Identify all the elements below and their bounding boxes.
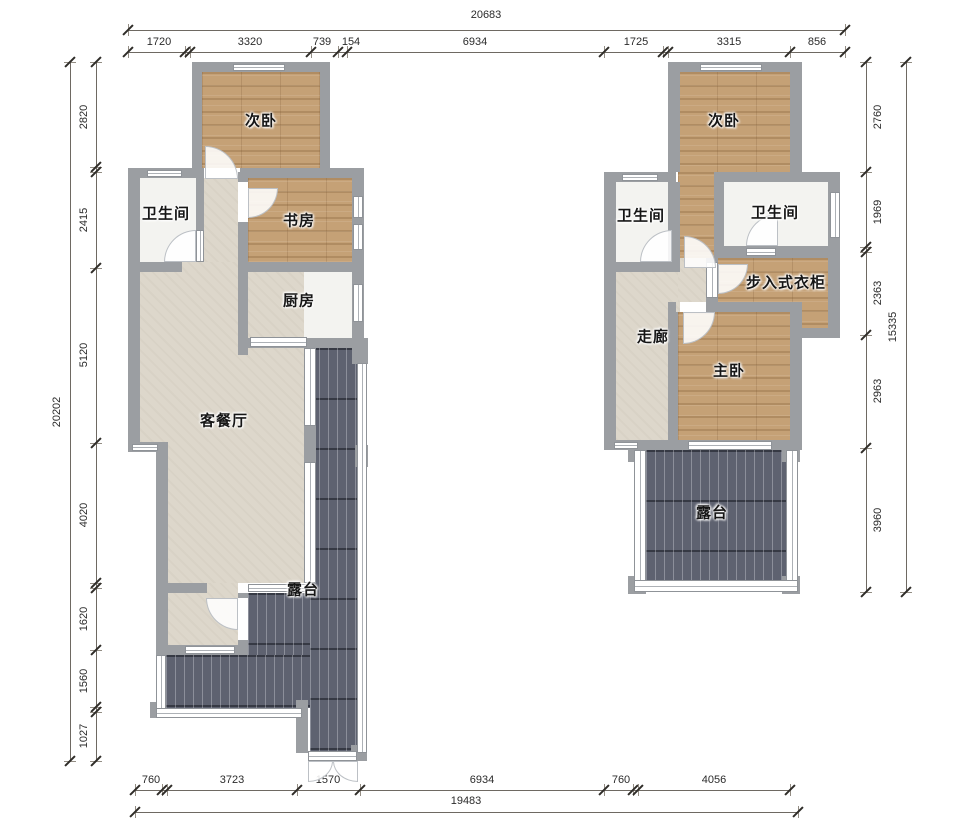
- wall: [156, 442, 168, 655]
- dim-bottom-seg: 760: [142, 774, 160, 786]
- dim-tick: [792, 806, 804, 818]
- dim-tick: [64, 755, 76, 767]
- window: [353, 284, 363, 322]
- room-label-living-dining: 客餐厅: [200, 410, 248, 431]
- wall: [790, 302, 802, 448]
- wall: [238, 593, 248, 598]
- dim-right-seg: 2760: [872, 105, 884, 129]
- window-slider: [688, 441, 772, 450]
- dim-tick: [90, 56, 102, 68]
- dim-tick: [90, 437, 102, 449]
- dim-right-seg-line: [866, 62, 867, 592]
- dim-tick: [839, 24, 851, 36]
- dim-bottom-seg: 4056: [702, 774, 726, 786]
- wall: [714, 172, 840, 182]
- dim-left-total: 20202: [51, 397, 63, 428]
- wall: [320, 62, 330, 168]
- window: [304, 348, 316, 426]
- wall: [196, 168, 204, 230]
- window: [147, 170, 182, 177]
- dim-tick: [90, 262, 102, 274]
- room-label-bedroom2-right: 次卧: [708, 110, 740, 131]
- room-living-dining-floor: [168, 442, 304, 583]
- room-label-bathroom2-right: 卫生间: [751, 202, 799, 223]
- dim-tick: [598, 784, 610, 796]
- wall: [156, 583, 207, 593]
- terrace-rail: [634, 450, 646, 592]
- dim-bottom-seg-line: [135, 790, 790, 791]
- terrace-rail: [786, 450, 798, 592]
- dim-tick: [598, 46, 610, 58]
- wall: [668, 312, 678, 440]
- dim-right-seg: 2963: [872, 379, 884, 403]
- dim-tick: [291, 784, 303, 796]
- wall: [238, 222, 248, 355]
- dim-top-seg: 3320: [238, 36, 262, 48]
- dim-left-seg: 1620: [78, 607, 90, 631]
- wall: [790, 62, 802, 172]
- floor-plan-canvas: 20683 1720 3320 739 154 6934 1725 3315 8…: [0, 0, 980, 840]
- window: [614, 442, 638, 449]
- wall: [604, 182, 616, 448]
- window: [830, 192, 840, 238]
- dim-top-seg: 739: [313, 36, 331, 48]
- room-label-terrace-left: 露台: [287, 579, 319, 600]
- room-label-study: 书房: [283, 210, 315, 231]
- dim-tick: [900, 586, 912, 598]
- dim-tick: [122, 46, 134, 58]
- dim-left-seg: 5120: [78, 343, 90, 367]
- terrace-left-deck: [310, 348, 357, 751]
- dim-tick: [129, 784, 141, 796]
- dim-tick: [122, 24, 134, 36]
- dim-left-seg: 1560: [78, 669, 90, 693]
- dim-bottom-seg: 6934: [470, 774, 494, 786]
- dim-top-total: 20683: [471, 9, 502, 21]
- dim-bottom-seg: 760: [612, 774, 630, 786]
- dim-tick: [860, 586, 872, 598]
- dim-tick: [90, 166, 102, 178]
- dim-top-total-line: [128, 30, 845, 31]
- dim-left-seg: 2820: [78, 105, 90, 129]
- wall: [304, 426, 316, 462]
- dim-left-seg: 4020: [78, 503, 90, 527]
- window: [622, 174, 658, 181]
- dim-tick: [161, 784, 173, 796]
- window: [304, 462, 316, 583]
- room-label-corridor: 走廊: [637, 326, 669, 347]
- room-label-bathroom1-right: 卫生间: [617, 205, 665, 226]
- wall: [668, 62, 680, 172]
- wall: [238, 172, 248, 182]
- dim-right-seg: 2363: [872, 281, 884, 305]
- door-leaf: [196, 230, 204, 262]
- window: [700, 64, 762, 71]
- wall: [352, 168, 364, 272]
- wall: [708, 302, 796, 312]
- dim-bottom-total: 19483: [451, 795, 482, 807]
- kitchen-opening: [250, 337, 307, 347]
- dim-tick: [860, 246, 872, 258]
- dim-top-seg: 6934: [463, 36, 487, 48]
- window: [353, 196, 363, 218]
- terrace-left-deck: [166, 655, 310, 708]
- wall: [128, 168, 140, 450]
- terrace-left-deck: [248, 593, 310, 655]
- dim-left-total-line: [70, 62, 71, 761]
- room-label-terrace-right: 露台: [696, 502, 728, 523]
- wall: [238, 262, 364, 272]
- dim-right-seg: 3960: [872, 508, 884, 532]
- wall: [192, 62, 202, 178]
- dim-tick: [784, 784, 796, 796]
- dim-tick: [860, 166, 872, 178]
- dim-right-total: 15335: [887, 312, 899, 343]
- dim-tick: [662, 46, 674, 58]
- room-label-bedroom2-left: 次卧: [245, 110, 277, 131]
- dim-tick: [900, 56, 912, 68]
- hall-floor: [204, 178, 238, 272]
- dim-tick: [860, 329, 872, 341]
- terrace-rail: [357, 363, 367, 753]
- wall: [240, 168, 364, 178]
- window: [233, 64, 285, 71]
- room-label-kitchen: 厨房: [283, 290, 315, 311]
- dim-top-seg-line: [128, 52, 845, 53]
- wall: [714, 246, 840, 258]
- dim-bottom-seg: 3723: [220, 774, 244, 786]
- dim-tick: [839, 46, 851, 58]
- wall: [128, 262, 182, 272]
- dim-right-total-line: [906, 62, 907, 592]
- dim-top-seg: 1725: [624, 36, 648, 48]
- dim-tick: [90, 582, 102, 594]
- terrace-rail: [308, 751, 357, 761]
- dim-tick: [90, 755, 102, 767]
- dim-tick: [784, 46, 796, 58]
- dim-left-seg: 2415: [78, 208, 90, 232]
- dim-tick: [860, 56, 872, 68]
- room-label-bathroom-left: 卫生间: [142, 203, 190, 224]
- dim-right-seg: 1969: [872, 200, 884, 224]
- dim-top-seg: 154: [342, 36, 360, 48]
- dim-tick: [860, 442, 872, 454]
- dim-top-seg: 3315: [717, 36, 741, 48]
- room-label-master-bedroom: 主卧: [713, 360, 745, 381]
- dim-tick: [90, 644, 102, 656]
- dim-top-seg: 856: [808, 36, 826, 48]
- terrace-rail: [156, 708, 302, 718]
- dim-tick: [90, 706, 102, 718]
- dim-top-seg: 1720: [147, 36, 171, 48]
- room-label-walk-in-closet: 步入式衣柜: [746, 272, 826, 293]
- dim-tick: [632, 784, 644, 796]
- wall: [604, 262, 680, 272]
- dim-tick: [184, 46, 196, 58]
- terrace-rail: [156, 655, 166, 710]
- door-leaf: [746, 248, 776, 256]
- dim-tick: [354, 784, 366, 796]
- wall: [352, 338, 368, 364]
- dim-left-seg: 1027: [78, 724, 90, 748]
- dim-bottom-total-line: [135, 812, 798, 813]
- dim-tick: [64, 56, 76, 68]
- window-door: [185, 646, 235, 654]
- window: [132, 444, 158, 451]
- wall: [668, 302, 676, 312]
- terrace-rail: [634, 580, 798, 592]
- window: [353, 224, 363, 250]
- dim-tick: [129, 806, 141, 818]
